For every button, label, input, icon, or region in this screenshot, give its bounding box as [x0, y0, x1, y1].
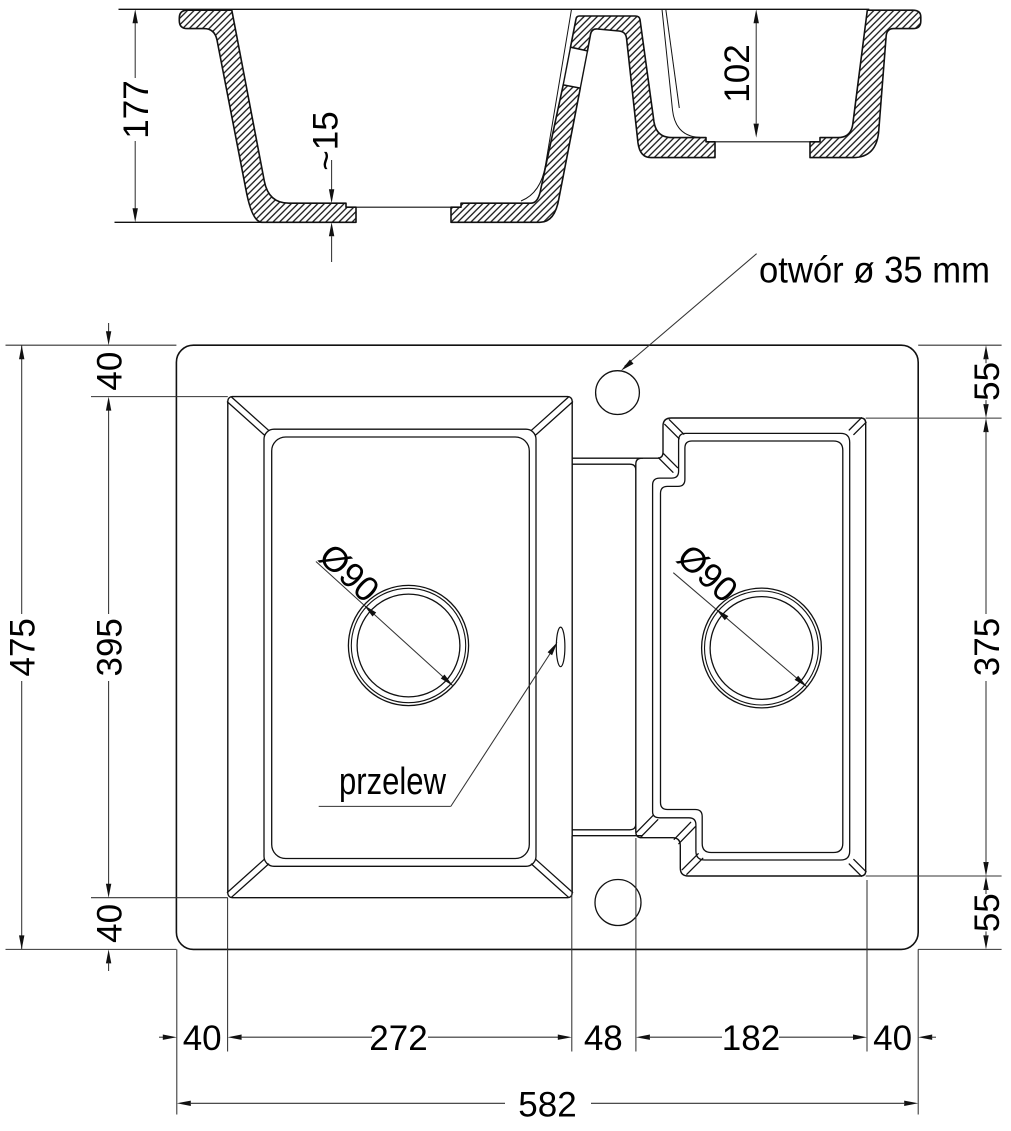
svg-text:182: 182 — [722, 1019, 780, 1058]
svg-text:48: 48 — [584, 1019, 623, 1058]
svg-text:375: 375 — [968, 618, 1007, 676]
svg-text:272: 272 — [369, 1019, 427, 1058]
svg-text:582: 582 — [518, 1085, 576, 1124]
svg-text:55: 55 — [968, 362, 1007, 401]
svg-text:~15: ~15 — [307, 111, 346, 170]
svg-text:475: 475 — [4, 618, 43, 676]
svg-text:395: 395 — [91, 618, 130, 676]
svg-text:przelew: przelew — [339, 761, 446, 803]
svg-text:40: 40 — [183, 1019, 222, 1058]
svg-text:40: 40 — [91, 352, 130, 391]
svg-text:40: 40 — [91, 904, 130, 943]
svg-text:177: 177 — [117, 80, 156, 138]
svg-text:55: 55 — [968, 893, 1007, 932]
svg-text:102: 102 — [718, 44, 757, 102]
svg-text:40: 40 — [873, 1019, 912, 1058]
svg-text:otwór ø 35 mm: otwór ø 35 mm — [759, 250, 990, 291]
